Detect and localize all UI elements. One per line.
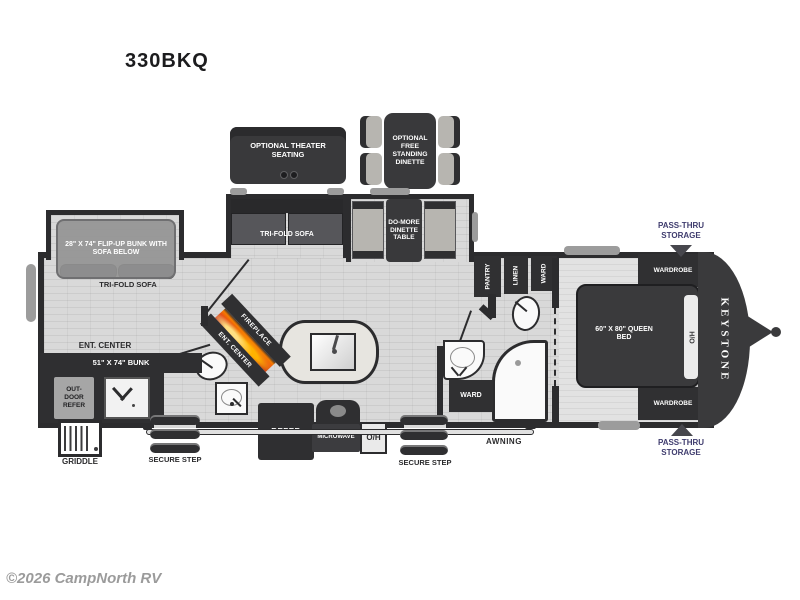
pantry-cabinet: PANTRY: [474, 256, 501, 297]
linen-cabinet: LINEN: [504, 256, 528, 294]
dinette-slide-side-tab: [472, 212, 478, 242]
wardrobe-top-label: WARDROBE: [654, 267, 693, 275]
outdoor-refer-label: OUT-DOOR REFER: [60, 386, 88, 409]
hitch-icon: [746, 315, 773, 349]
griddle-grates: [64, 426, 90, 451]
awning-hook: [525, 425, 536, 429]
brand-label: KEYSTONE: [718, 298, 730, 383]
bedroom-wall-lower: [552, 386, 559, 422]
sofa-seat: [231, 213, 286, 245]
awning-label: AWNING: [468, 437, 540, 447]
kitchen-island: [279, 320, 379, 384]
optional-theater-seating: OPTIONAL THEATER SEATING: [230, 127, 346, 184]
faucet-icon: [332, 349, 337, 354]
secure-step-left-label: SECURE STEP: [136, 455, 214, 464]
faucet-icon: [230, 402, 234, 406]
secure-step-left: [150, 415, 200, 455]
flip-up-bunk-label: 28" X 74" FLIP-UP BUNK WITH SOFA BELOW: [60, 241, 172, 258]
sofa-armrest: [230, 188, 247, 195]
optional-dinette-chair: [438, 153, 460, 185]
page-title: 330BKQ: [125, 50, 209, 73]
griddle-knob: [94, 447, 98, 451]
bunk-51x74: 51" X 74" BUNK: [40, 353, 202, 373]
secure-step-right-label: SECURE STEP: [386, 458, 464, 467]
optional-dinette-chair: [360, 116, 382, 148]
step-tread: [150, 429, 200, 439]
griddle-icon: [58, 420, 102, 457]
flip-up-bunk: 28" X 74" FLIP-UP BUNK WITH SOFA BELOW: [56, 219, 176, 279]
outdoor-kitchen: OUT-DOOR REFER: [40, 373, 164, 423]
floorplan: 330BKQ ©2026 CampNorth RV OPTIONAL THEAT…: [0, 0, 800, 600]
step-tread: [400, 415, 448, 425]
optional-dinette-chair: [438, 116, 460, 148]
arrow-up-icon: [671, 424, 693, 436]
range-icon: [316, 400, 360, 426]
optional-free-standing-dinette: OPTIONAL FREE STANDING DINETTE: [384, 113, 436, 189]
hitch-ball-icon: [771, 327, 781, 337]
front-cap: KEYSTONE: [698, 252, 750, 428]
rear-sofa-label: TRI-FOLD SOFA: [68, 280, 188, 289]
sink-cabinet-icon: [215, 382, 248, 415]
secure-step-right: [400, 415, 448, 459]
cupholder-icon: [290, 171, 298, 179]
microwave-label: MICROWAVE: [317, 434, 354, 441]
awning-bar: [146, 429, 534, 435]
free-standing-dinette-label: OPTIONAL FREE STANDING DINETTE: [387, 135, 433, 167]
bedroom-wall-upper: [552, 258, 559, 308]
pantry-label: PANTRY: [484, 264, 491, 290]
step-tread: [400, 445, 448, 455]
arrow-down-icon: [670, 245, 692, 257]
range-burner: [330, 405, 346, 417]
copyright: ©2026 CampNorth RV: [6, 570, 161, 587]
pass-thru-storage-top-label: PASS-THRU STORAGE: [642, 221, 720, 240]
sofa-seat: [288, 213, 343, 245]
faucet-icon: [120, 387, 133, 401]
wardrobe-bottom-label: WARDROBE: [654, 400, 693, 408]
dinette-bench: [424, 201, 456, 259]
window-tab: [564, 246, 620, 255]
overhead-cabinet: O/H: [360, 422, 387, 454]
linen-label: LINEN: [513, 265, 520, 285]
drain-dot: [132, 404, 135, 407]
dinette-slide-topper: [370, 188, 410, 195]
step-tread: [150, 415, 200, 425]
dinette-table: DO-MORE DINETTE TABLE: [386, 199, 422, 262]
window-tab: [598, 421, 640, 430]
sofa-back: [231, 199, 343, 213]
ent-center-label: ENT. CENTER: [50, 341, 160, 351]
rear-bumper: [26, 264, 36, 322]
outdoor-refer: OUT-DOOR REFER: [54, 377, 94, 419]
outdoor-sink-icon: [104, 377, 150, 419]
head-of-bed-label: H/O: [687, 331, 694, 343]
ward-cabinet-label: WARD: [540, 264, 547, 284]
theater-seating-label: OPTIONAL THEATER SEATING: [238, 142, 338, 160]
shower-drain: [515, 360, 521, 366]
ward-mid: WARD: [449, 380, 493, 412]
head-of-bed: H/O: [684, 295, 698, 379]
sofa-armrest: [327, 188, 344, 195]
step-tread: [150, 443, 200, 453]
queen-bed: 60" X 80" QUEEN BED H/O: [576, 284, 700, 388]
ward-mid-label: WARD: [460, 392, 481, 400]
pass-thru-storage-bottom-label: PASS-THRU STORAGE: [642, 438, 720, 457]
dinette-bench: [352, 201, 384, 259]
optional-dinette-chair: [360, 153, 382, 185]
sofa-slide-label: TRI-FOLD SOFA: [234, 231, 340, 239]
sliding-door: [554, 308, 556, 386]
sink-basin: [450, 347, 475, 368]
step-tread: [400, 430, 448, 440]
bunk-label: 51" X 74" BUNK: [93, 359, 150, 368]
queen-bed-label: 60" X 80" QUEEN BED: [592, 326, 656, 343]
faucet-icon: [459, 367, 468, 377]
griddle-label: GRIDDLE: [45, 457, 115, 467]
cupholder-icon: [280, 171, 288, 179]
dinette-table-label: DO-MORE DINETTE TABLE: [387, 219, 421, 242]
